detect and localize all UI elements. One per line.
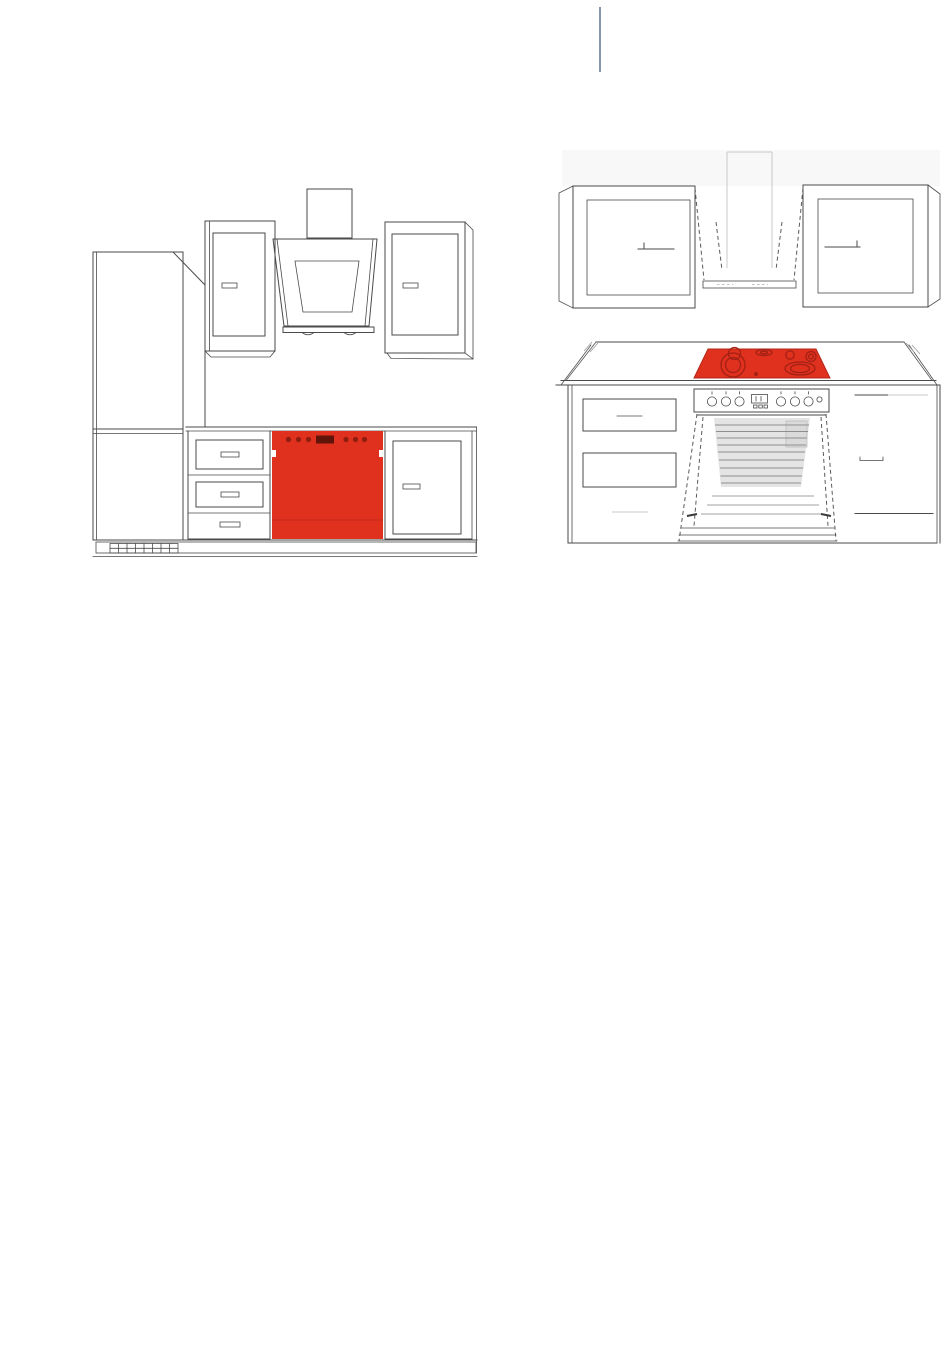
hood-duct: [307, 189, 352, 238]
wall-cabinet-right: [385, 222, 473, 359]
oven-door-hinge: [821, 514, 831, 516]
hood-bottom-bar: [703, 281, 796, 288]
cabinet-door: [392, 234, 458, 335]
oven-door-hinge: [687, 514, 697, 516]
ventilation-grille: [110, 544, 178, 554]
figure-kitchen-elevation-right: [550, 145, 950, 550]
oven-with-open-door: [678, 389, 837, 541]
wall-shading: [562, 150, 940, 186]
burner-dot-icon: [755, 373, 758, 376]
drawer-handle: [220, 522, 240, 527]
base-drawers-left: [583, 399, 676, 512]
base-cabinet-right: [385, 431, 472, 539]
drawer-unit: [188, 431, 270, 539]
oven-door-glass-streaks: [701, 496, 823, 514]
wall-cabinet-left: [559, 186, 695, 308]
cooktop-highlighted: [694, 348, 830, 379]
page: { "page": { "background": "#ffffff" }, "…: [0, 0, 950, 1369]
door-handle: [222, 283, 237, 288]
drawer-handle: [221, 452, 239, 457]
tall-end-panel: [173, 252, 205, 427]
fridge-freezer: [93, 252, 183, 540]
dishwasher-display: [316, 436, 334, 444]
drawer-front: [196, 440, 263, 469]
page-column-divider-line: [599, 7, 601, 72]
drawer-handle: [221, 492, 239, 497]
chimney-range-hood: [273, 189, 377, 335]
drawer-front: [196, 482, 263, 507]
plinth: [93, 540, 477, 557]
dishwasher-hinge-mark: [272, 450, 276, 457]
dishwasher-highlighted: [272, 431, 383, 539]
figure-kitchen-elevation-left: [85, 180, 485, 565]
drawer-front: [583, 453, 676, 487]
dishwasher-door: [272, 431, 383, 539]
door-handle: [860, 457, 883, 461]
cabinet-door: [213, 233, 265, 336]
door-handle: [403, 283, 418, 288]
hood-bottom-bar: [283, 327, 374, 333]
wall-cabinet-right: [803, 185, 940, 307]
left-figure-canvas: [85, 180, 485, 565]
dishwasher-hinge-mark: [379, 450, 383, 457]
door-handle: [403, 484, 420, 489]
right-figure-canvas: [550, 145, 950, 550]
wall-cabinet-left: [205, 221, 275, 357]
drawer-front: [583, 399, 676, 431]
hood-glass-panel: [295, 261, 359, 312]
base-cabinet-right: [855, 395, 933, 514]
